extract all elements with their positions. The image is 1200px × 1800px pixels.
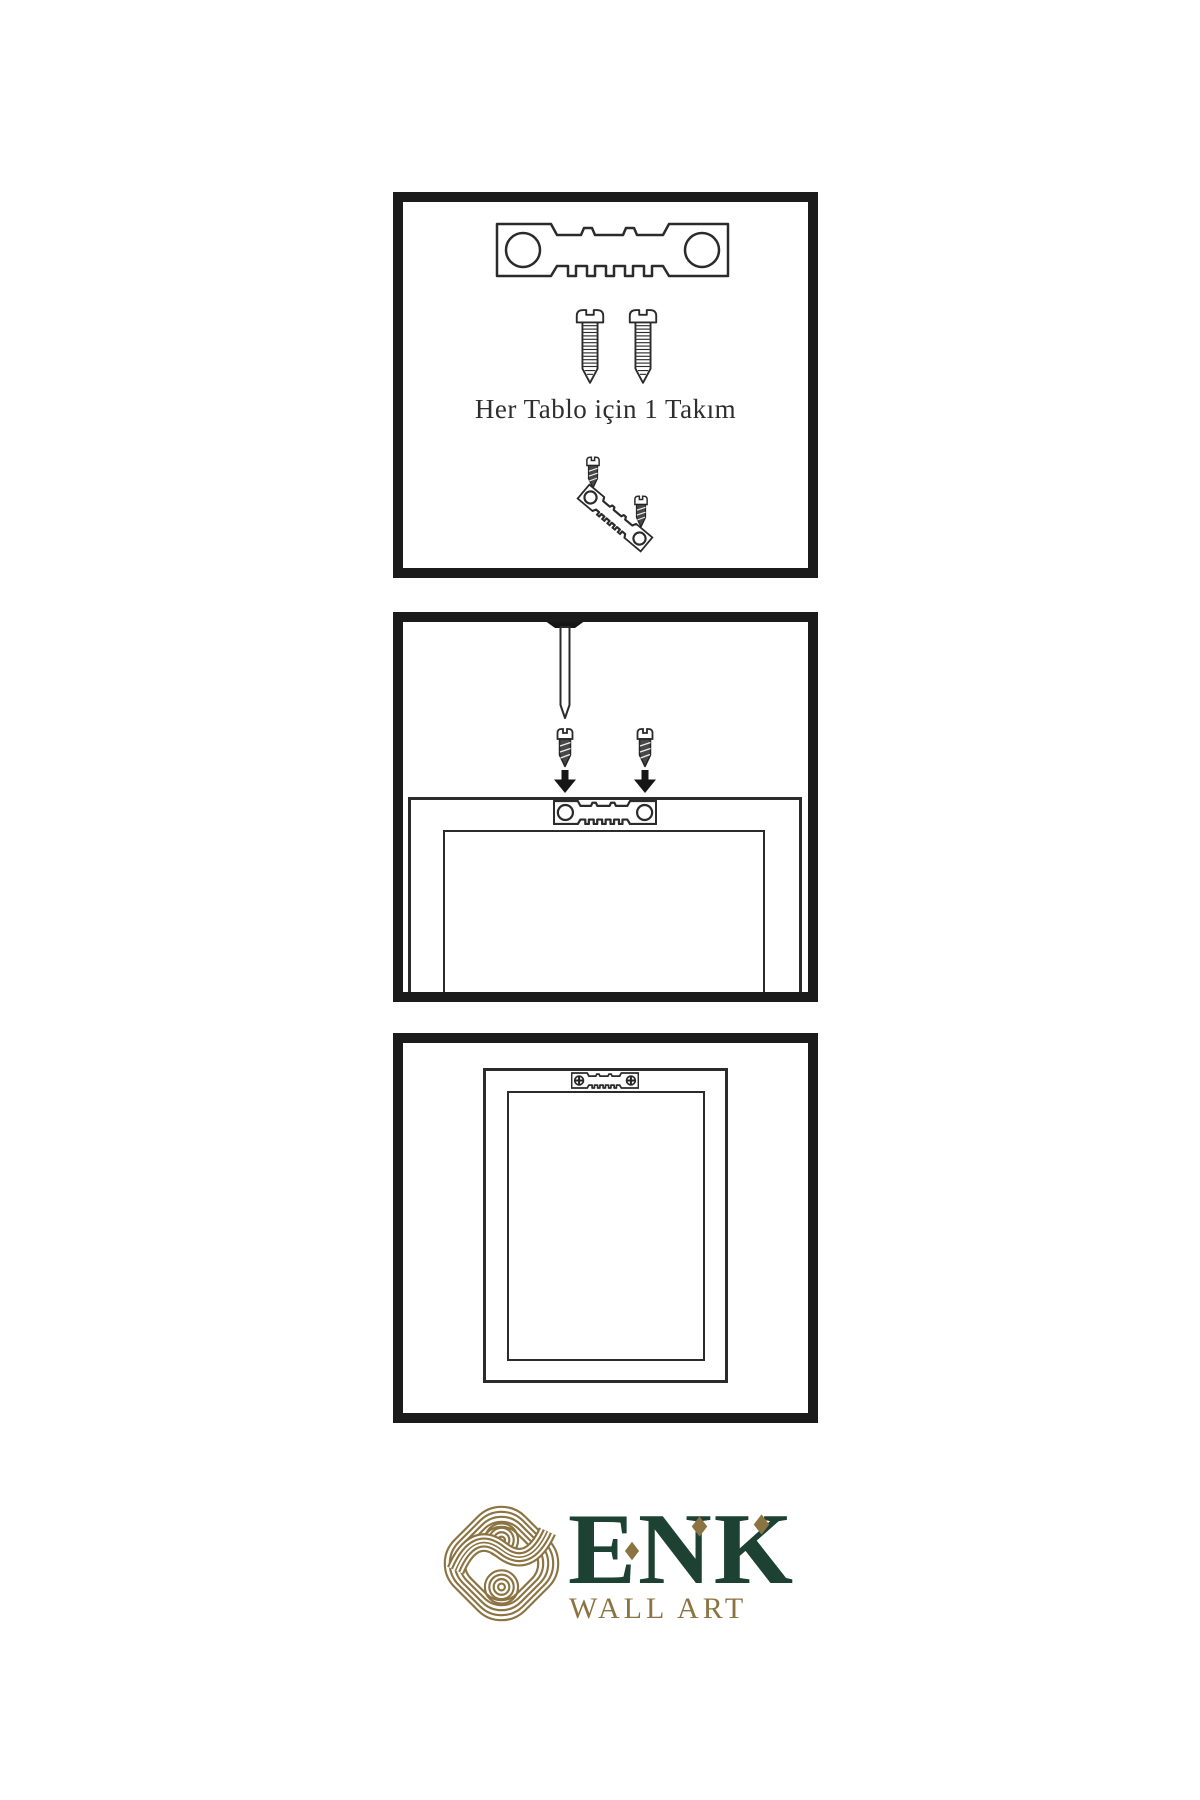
logo-subtitle: WALL ART [569,1594,747,1624]
screw-icon [626,306,660,386]
frame-back-outline [408,797,802,1002]
frame-back-inner-outline [443,830,765,1002]
screw-dark-icon [632,493,650,529]
screw-dark-icon [634,725,656,769]
sawtooth-hanger-icon [495,222,730,278]
step-panel-mounting [393,612,818,1002]
step1-caption: Her Tablo için 1 Takım [403,392,808,426]
frame-front-outline [483,1068,728,1383]
sawtooth-hanger-mounted-icon [571,1072,639,1089]
screw-dark-icon [554,725,576,769]
step-panel-result [393,1033,818,1423]
sawtooth-hanger-icon [553,800,657,825]
step-panel-hardware-kit: Her Tablo için 1 Takım [393,192,818,578]
arrow-down-icon [634,770,656,793]
screw-icon [573,306,607,386]
frame-front-inner-outline [507,1091,705,1361]
instruction-sheet: Her Tablo için 1 Takım [0,0,1200,1800]
arrow-down-icon [554,770,576,793]
nail-icon [537,615,593,719]
knot-logo-icon [438,1500,565,1627]
